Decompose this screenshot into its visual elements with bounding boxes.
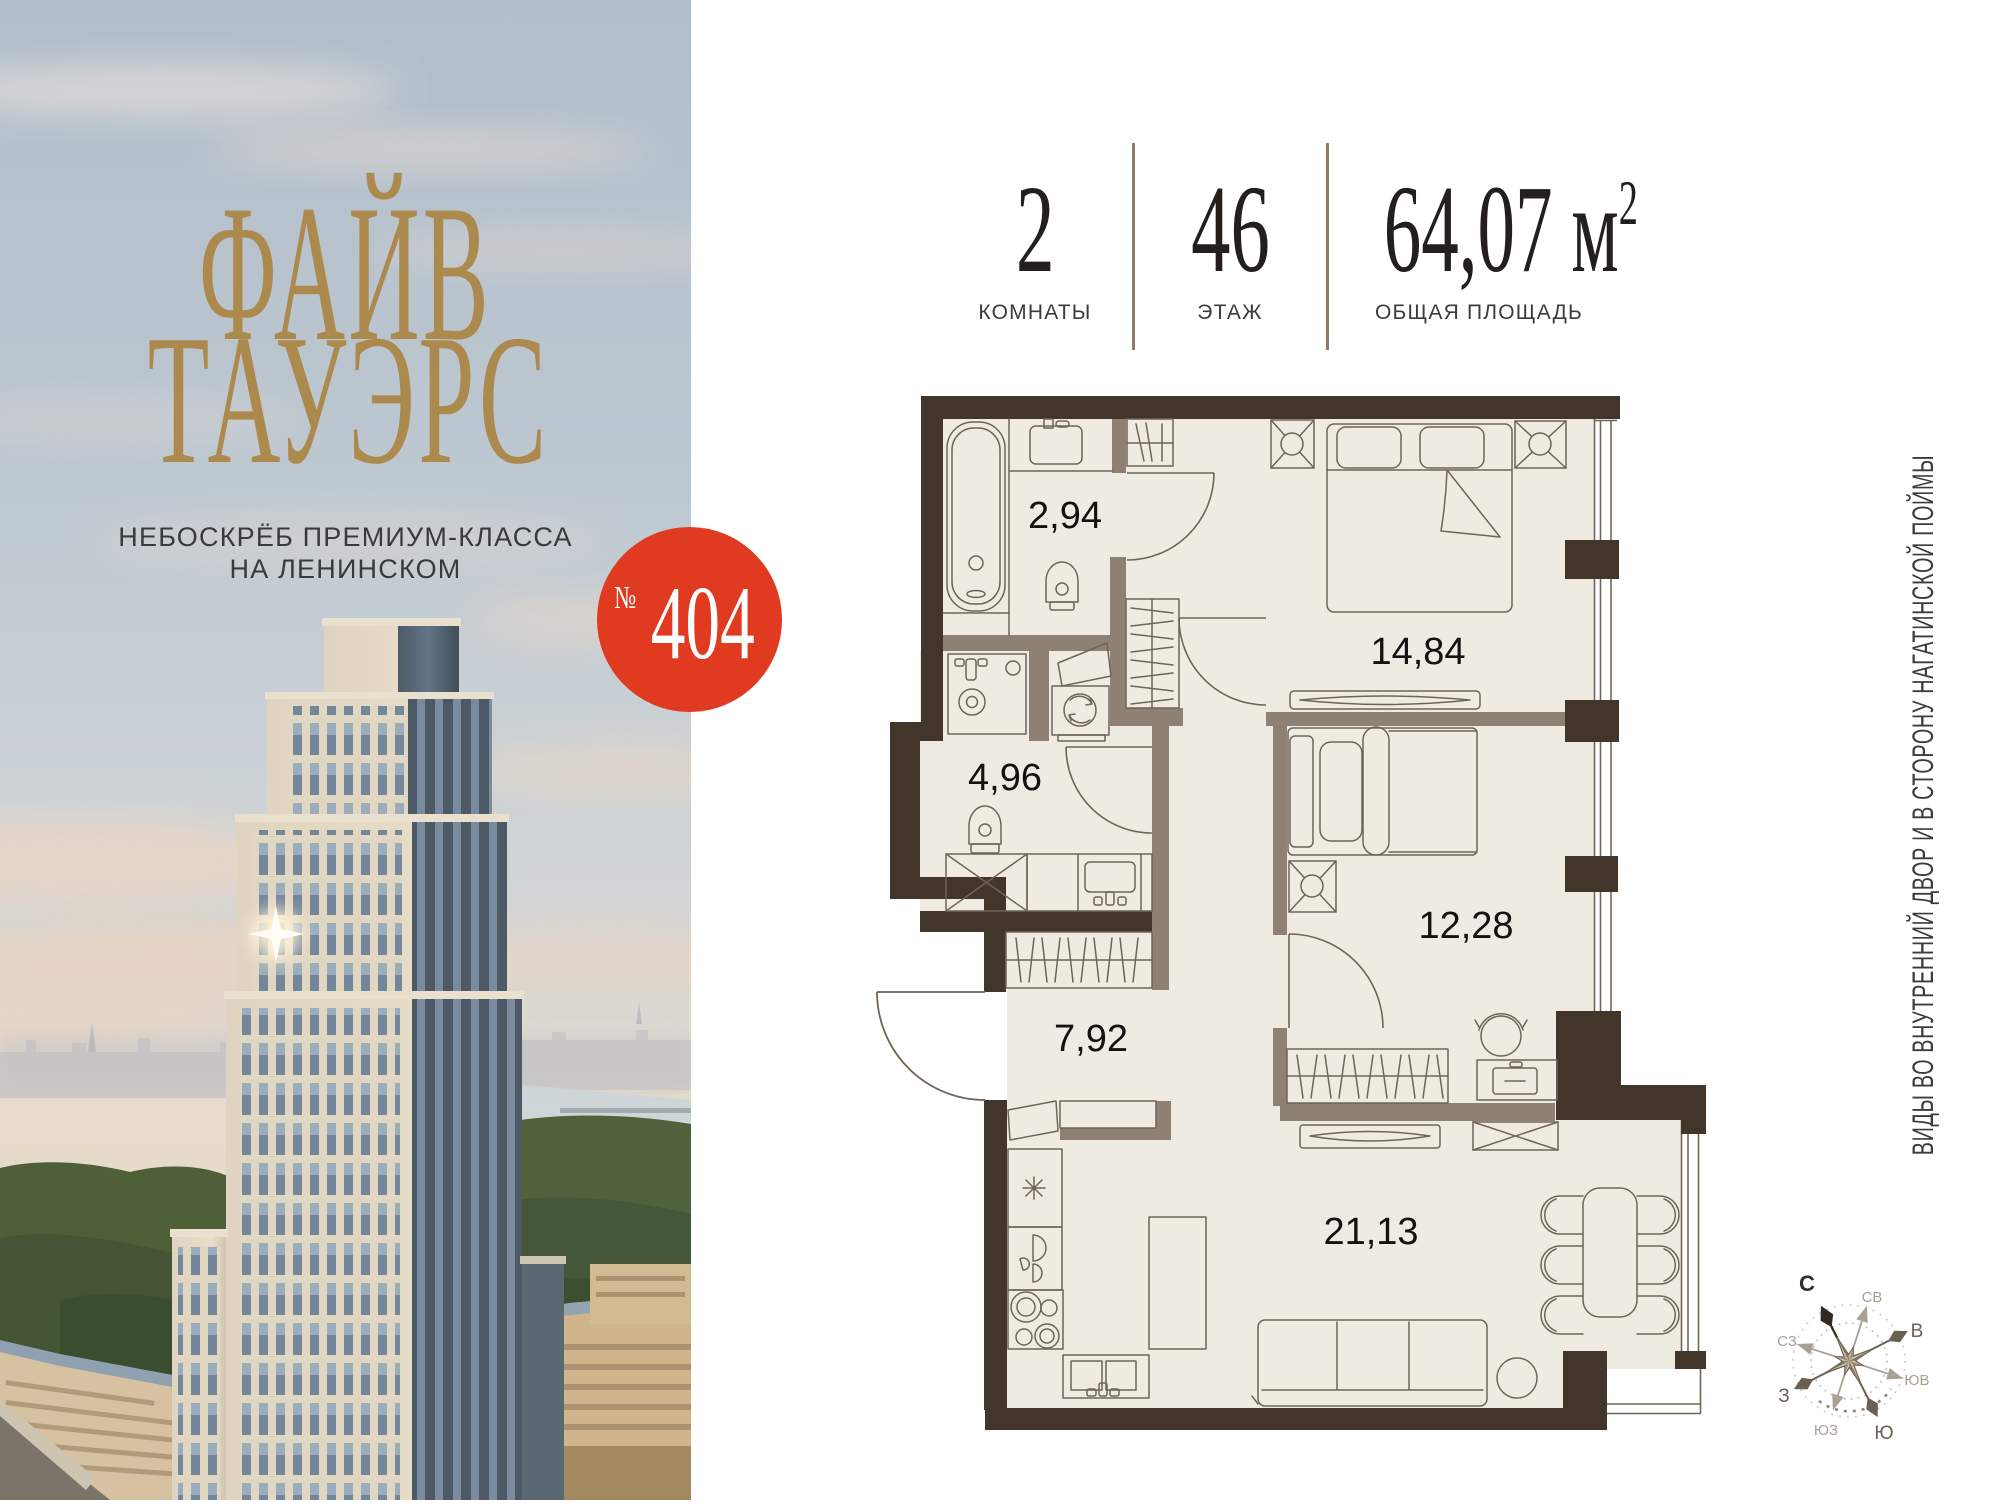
svg-text:ЮЗ: ЮЗ bbox=[1814, 1422, 1838, 1439]
svg-text:Ю: Ю bbox=[1874, 1423, 1893, 1444]
svg-text:21,13: 21,13 bbox=[1323, 1211, 1418, 1253]
svg-text:12,28: 12,28 bbox=[1418, 905, 1513, 947]
svg-text:14,84: 14,84 bbox=[1370, 631, 1465, 673]
svg-text:2,94: 2,94 bbox=[1028, 495, 1102, 537]
svg-text:З: З bbox=[1778, 1386, 1789, 1407]
svg-text:4,96: 4,96 bbox=[968, 757, 1042, 799]
svg-text:СЗ: СЗ bbox=[1777, 1333, 1797, 1350]
svg-text:В: В bbox=[1911, 1321, 1924, 1342]
svg-text:ЮВ: ЮВ bbox=[1904, 1372, 1929, 1389]
svg-text:С: С bbox=[1799, 1271, 1815, 1296]
svg-text:СВ: СВ bbox=[1862, 1289, 1883, 1306]
svg-text:7,92: 7,92 bbox=[1054, 1018, 1128, 1060]
